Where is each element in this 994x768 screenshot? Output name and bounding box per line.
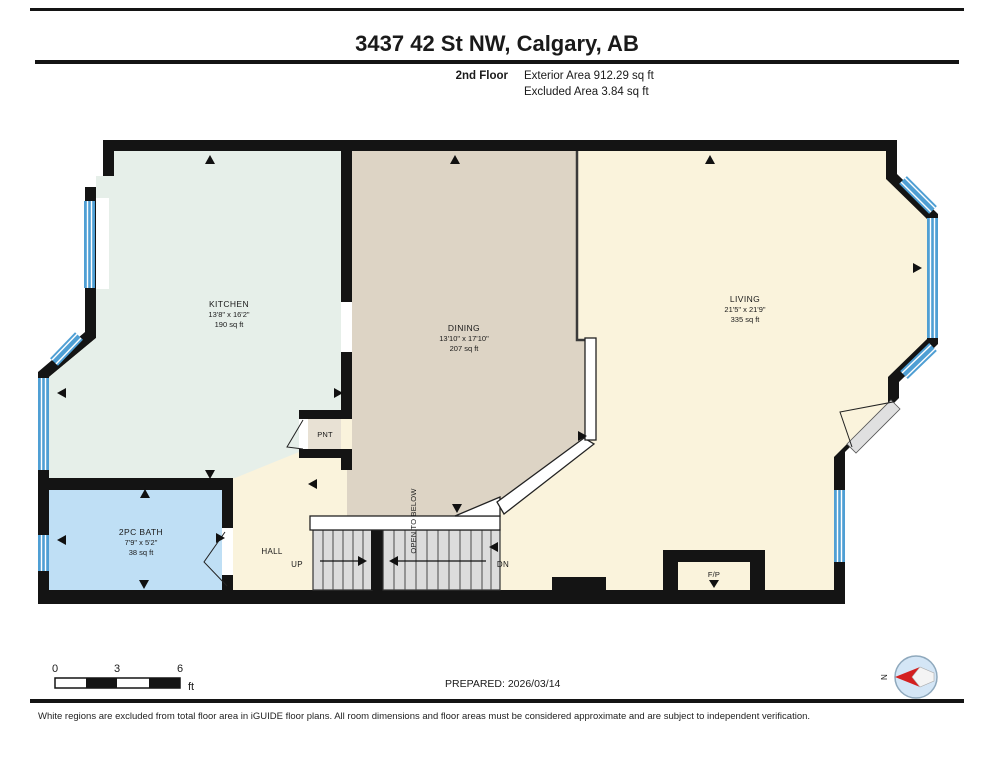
scale-tick-0: 0	[52, 663, 58, 675]
prepared-date: PREPARED: 2026/03/14	[445, 678, 561, 690]
stairs-down-label: DN	[497, 560, 509, 569]
dining-dims: 13'10" x 17'10"	[439, 334, 489, 343]
open-to-below-label: OPEN TO BELOW	[409, 488, 418, 554]
kitchen-bay-window	[84, 201, 95, 288]
stair-railing	[310, 516, 500, 530]
scale-bar-segment	[149, 678, 180, 688]
disclaimer-text: White regions are excluded from total fl…	[38, 711, 810, 722]
kitchen-dining-wall	[341, 151, 352, 302]
exterior-area-label: Exterior Area 912.29 sq ft	[524, 70, 655, 82]
living-bay-window-center	[927, 218, 938, 338]
scale-unit-label: ft	[188, 681, 194, 693]
bath-window	[38, 535, 49, 571]
fireplace-label: F/P	[708, 570, 720, 579]
open-below-railing-vertical	[585, 338, 596, 440]
page-title: 3437 42 St NW, Calgary, AB	[355, 31, 639, 56]
stairs-center-wall	[371, 526, 383, 590]
kitchen-area: 190 sq ft	[215, 320, 245, 329]
dining-area: 207 sq ft	[450, 344, 480, 353]
bath-door-opening	[222, 528, 233, 575]
bath-label: 2PC BATH	[119, 527, 163, 537]
kitchen-dining-wall-lower	[341, 352, 352, 412]
pantry-wall-bottom	[299, 449, 352, 458]
fireplace-wall-top	[663, 550, 765, 562]
fireplace-wall-left	[663, 550, 678, 590]
bath-area: 38 sq ft	[129, 548, 155, 557]
scale-bar-segment	[86, 678, 117, 688]
floor-plan-image: 3437 42 St NW, Calgary, AB 2nd Floor Ext…	[0, 0, 994, 768]
header-divider-line	[35, 60, 959, 64]
living-label: LIVING	[730, 294, 760, 304]
living-dims: 21'5" x 21'9"	[724, 305, 765, 314]
pantry-wall-top	[299, 410, 352, 419]
bath-wall-top	[38, 478, 233, 490]
living-area: 335 sq ft	[731, 315, 761, 324]
kitchen-dims: 13'8" x 16'2"	[208, 310, 249, 319]
kitchen-label: KITCHEN	[209, 299, 249, 309]
footer-divider-line	[30, 699, 964, 703]
chimney-stub	[552, 577, 606, 590]
floor-label: 2nd Floor	[456, 70, 509, 82]
compass-north-label: N	[880, 674, 889, 680]
bath-dims: 7'9" x 5'2"	[125, 538, 158, 547]
floorplan-page: 3437 42 St NW, Calgary, AB 2nd Floor Ext…	[0, 0, 994, 768]
living-right-window	[834, 490, 845, 562]
fireplace-wall-right	[750, 550, 765, 590]
left-window	[38, 378, 49, 470]
pantry-label: PNT	[317, 430, 333, 439]
dining-label: DINING	[448, 323, 480, 333]
kitchen-dining-opening	[341, 302, 352, 352]
scale-tick-3: 3	[114, 663, 120, 675]
top-border-line	[30, 8, 964, 11]
excluded-area-label: Excluded Area 3.84 sq ft	[524, 86, 649, 98]
scale-tick-6: 6	[177, 663, 183, 675]
hall-label: HALL	[261, 547, 282, 556]
bay-window-sill	[96, 198, 109, 289]
compass-icon: N	[880, 656, 937, 698]
stairs-up-label: UP	[291, 560, 303, 569]
wall-stub	[341, 458, 352, 470]
